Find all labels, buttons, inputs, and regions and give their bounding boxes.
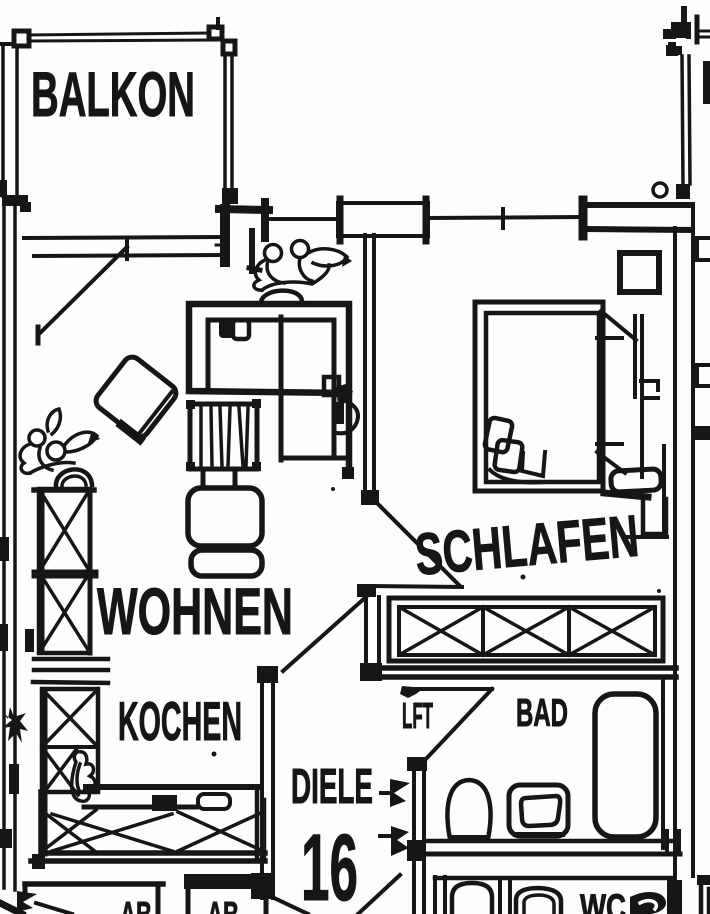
svg-text:AB: AB [207,894,239,914]
svg-text:DIELE: DIELE [291,760,373,814]
svg-text:BALKON: BALKON [31,60,195,130]
svg-text:BAD: BAD [516,692,568,735]
svg-text:WOHNEN: WOHNEN [97,574,293,648]
svg-text:WC: WC [580,887,626,914]
svg-text:LFT: LFT [402,695,433,736]
svg-text:16: 16 [301,815,358,914]
svg-text:KOCHEN: KOCHEN [118,690,242,752]
svg-text:AB: AB [120,894,152,914]
